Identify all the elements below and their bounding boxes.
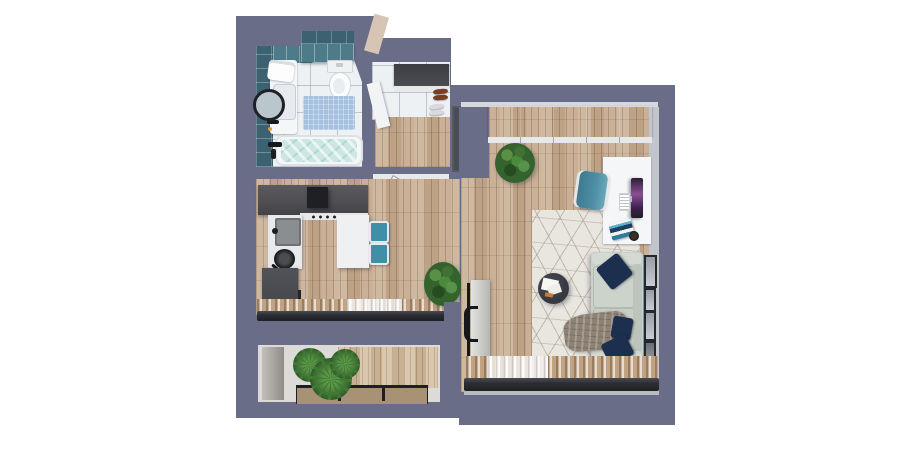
kitchen-sink xyxy=(275,218,301,246)
cooker-hood xyxy=(307,187,328,208)
bar-stool-1 xyxy=(369,221,389,243)
living-curtain-sheer xyxy=(488,356,548,380)
balcony-column xyxy=(262,347,284,400)
tub-faucet xyxy=(268,142,282,147)
cup xyxy=(629,231,639,241)
wall-notch xyxy=(451,38,463,85)
kitchen-sink-faucet xyxy=(272,228,278,234)
wall-frame-3 xyxy=(644,311,656,341)
soap-dish-gold xyxy=(268,127,272,131)
tv-handle xyxy=(464,306,478,342)
tub-shower-head xyxy=(271,149,276,159)
living-plant-large xyxy=(495,143,535,183)
keyboard xyxy=(619,193,630,211)
bathtub-water xyxy=(281,139,357,162)
round-mirror xyxy=(253,89,285,121)
entry-wardrobe-shelf xyxy=(394,64,449,86)
monitor xyxy=(631,178,643,218)
bar-stool-2 xyxy=(369,243,389,265)
living-window-sill xyxy=(464,391,659,395)
bathroom-towel xyxy=(267,59,296,82)
desk-chair xyxy=(576,170,609,211)
sofa-backrest xyxy=(633,264,642,352)
bathroom-tiled-block-top xyxy=(301,31,354,44)
wall-frame-2 xyxy=(644,288,656,312)
living-niche-wall xyxy=(459,107,489,178)
living-curtain-rail xyxy=(464,378,659,391)
stove-knobs xyxy=(310,215,336,219)
toilet-flush-button xyxy=(336,63,343,67)
kitchen-island xyxy=(337,215,369,268)
kitchen-plant xyxy=(424,262,462,306)
planter-divider-2 xyxy=(382,385,385,401)
living-closet-top xyxy=(488,106,652,137)
toilet-seat xyxy=(333,78,345,94)
kitchen-curtain-rail xyxy=(257,311,455,321)
wall-frame-1 xyxy=(644,255,657,288)
bath-mat xyxy=(303,96,355,130)
balcony-palm-3 xyxy=(330,349,360,379)
floor-plan xyxy=(0,0,900,450)
